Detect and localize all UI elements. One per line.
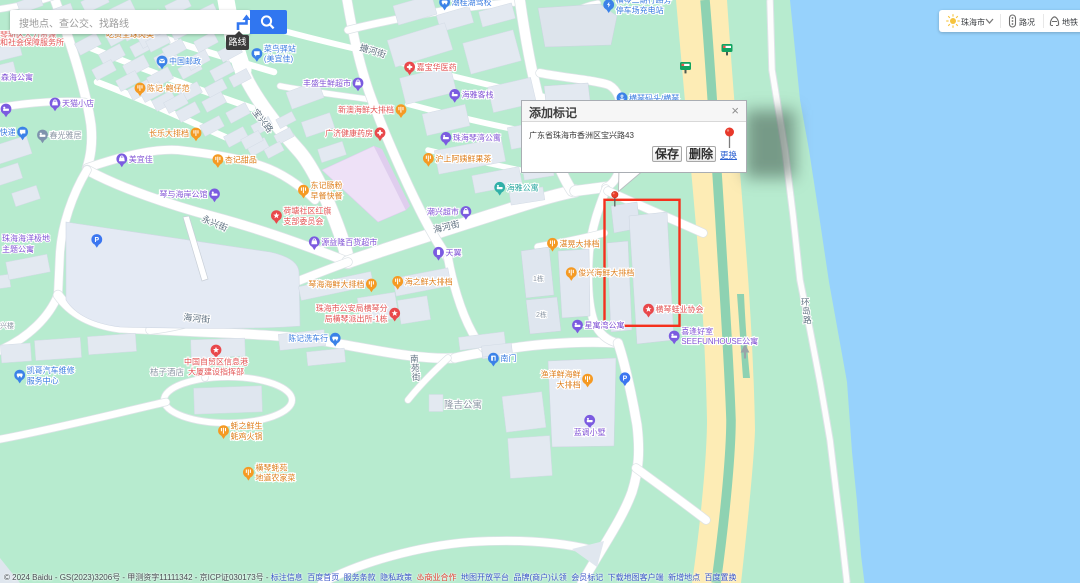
svg-text:SEEFUNHOUSE公寓: SEEFUNHOUSE公寓 <box>681 336 758 346</box>
svg-text:主题公寓: 主题公寓 <box>2 244 34 254</box>
svg-text:海雅客栈: 海雅客栈 <box>462 89 494 99</box>
svg-text:湛晃大排档: 湛晃大排档 <box>560 238 600 248</box>
svg-text:蚝鸡火锅: 蚝鸡火锅 <box>231 431 263 441</box>
svg-text:停车场充电站: 停车场充电站 <box>616 5 664 15</box>
svg-text:广济健康药房: 广济健康药房 <box>325 128 373 138</box>
svg-text:嘉宝华医药: 嘉宝华医药 <box>417 62 457 72</box>
svg-text:珠海海洋极地: 珠海海洋极地 <box>2 233 50 243</box>
svg-text:兴楼: 兴楼 <box>0 321 14 330</box>
svg-text:服务中心: 服务中心 <box>27 375 59 385</box>
svg-text:荷塘社区红旗: 荷塘社区红旗 <box>283 206 331 216</box>
svg-text:琴与海岸公馆: 琴与海岸公馆 <box>160 189 208 199</box>
svg-text:1栋: 1栋 <box>533 274 544 283</box>
svg-text:中国自贸区信息港: 中国自贸区信息港 <box>184 357 248 367</box>
svg-text:丰盛生鲜超市: 丰盛生鲜超市 <box>303 78 351 88</box>
svg-text:海之鲜大排档: 海之鲜大排档 <box>405 276 453 286</box>
svg-text:陈记·鲍仔范: 陈记·鲍仔范 <box>147 83 190 93</box>
svg-text:源益隆百货超市: 源益隆百货超市 <box>321 237 377 247</box>
svg-text:早餐快餐: 早餐快餐 <box>311 190 343 200</box>
svg-text:星寓湾公寓: 星寓湾公寓 <box>585 320 625 330</box>
svg-text:桔子酒店: 桔子酒店 <box>150 367 185 377</box>
svg-text:局横琴派出所-1栋: 局横琴派出所-1栋 <box>325 313 388 323</box>
svg-text:沪上阿姨鲜果茶: 沪上阿姨鲜果茶 <box>435 153 491 163</box>
svg-text:潮桂湖驾校: 潮桂湖驾校 <box>452 0 492 7</box>
svg-text:陈记洗车行: 陈记洗车行 <box>288 333 328 343</box>
svg-text:支部委员会: 支部委员会 <box>283 216 323 226</box>
svg-text:横琴三期行路旁: 横琴三期行路旁 <box>616 0 672 5</box>
svg-text:潮兴超市: 潮兴超市 <box>427 207 459 217</box>
svg-text:和社会保障服务所: 和社会保障服务所 <box>0 37 64 47</box>
svg-text:隆吉公寓: 隆吉公寓 <box>444 399 482 411</box>
svg-text:大厦建设指挥部: 大厦建设指挥部 <box>188 367 244 377</box>
svg-text:南门: 南门 <box>500 353 516 363</box>
svg-text:天猫小店: 天猫小店 <box>62 98 94 108</box>
svg-text:中国邮政: 中国邮政 <box>169 56 201 66</box>
svg-text:杏记甜品: 杏记甜品 <box>225 155 257 165</box>
svg-text:珠海琴湾公寓: 珠海琴湾公寓 <box>453 132 501 142</box>
svg-text:新澳海鲜大排档: 新澳海鲜大排档 <box>338 105 394 115</box>
svg-text:大排档: 大排档 <box>557 379 581 389</box>
svg-text:地道农家菜: 地道农家菜 <box>255 473 295 483</box>
svg-text:天翼: 天翼 <box>446 248 462 257</box>
svg-text:海雅公寓: 海雅公寓 <box>507 182 539 192</box>
svg-text:快递: 快递 <box>0 127 16 137</box>
svg-text:菜鸟驿站: 菜鸟驿站 <box>264 44 296 54</box>
svg-text:长乐大排档: 长乐大排档 <box>149 128 189 138</box>
svg-text:蚝之鲜生: 蚝之鲜生 <box>231 421 263 431</box>
svg-text:2栋: 2栋 <box>536 310 547 319</box>
svg-text:横琴蚝苑: 横琴蚝苑 <box>255 462 287 472</box>
svg-text:渔洋鲜海鲜: 渔洋鲜海鲜 <box>541 369 581 379</box>
svg-text:俊兴海鲜大排档: 俊兴海鲜大排档 <box>578 268 634 278</box>
svg-text:美宜佳: 美宜佳 <box>129 154 153 164</box>
svg-text:森海公寓: 森海公寓 <box>1 72 33 82</box>
svg-text:凯哥汽车维修: 凯哥汽车维修 <box>27 365 75 375</box>
svg-text:春光雅居: 春光雅居 <box>50 130 82 140</box>
svg-text:珠海市公安局横琴分: 珠海市公安局横琴分 <box>316 303 388 313</box>
svg-text:横琴蛙业协会: 横琴蛙业协会 <box>656 304 704 314</box>
svg-text:蓝调小墅: 蓝调小墅 <box>574 427 606 437</box>
svg-text:琴海海鲜大排档: 琴海海鲜大排档 <box>308 279 364 289</box>
svg-text:喜逢好室: 喜逢好室 <box>681 326 713 336</box>
svg-text:(美宜佳): (美宜佳) <box>264 54 294 64</box>
svg-text:东记肠粉: 东记肠粉 <box>311 180 343 190</box>
